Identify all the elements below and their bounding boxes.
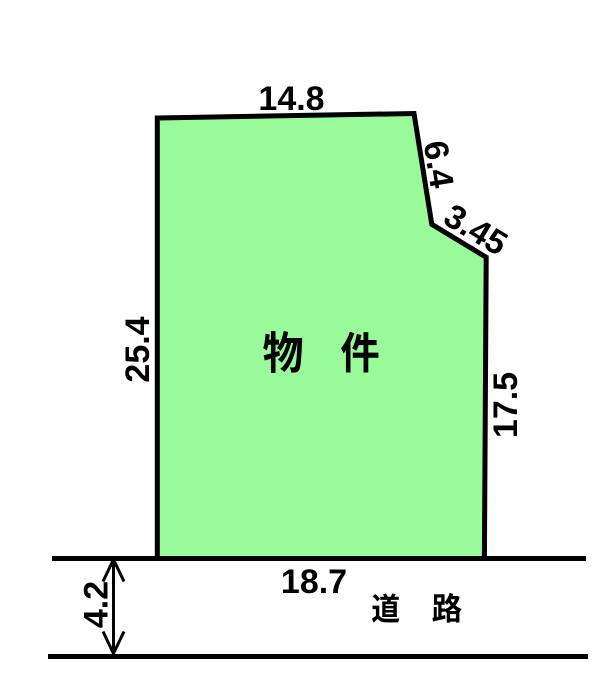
svg-text:4.2: 4.2	[78, 581, 116, 628]
svg-text:25.4: 25.4	[119, 316, 157, 382]
svg-text:18.7: 18.7	[281, 563, 347, 601]
svg-text:6.4: 6.4	[416, 138, 461, 191]
svg-text:14.8: 14.8	[258, 80, 324, 118]
svg-text:17.5: 17.5	[487, 372, 525, 438]
